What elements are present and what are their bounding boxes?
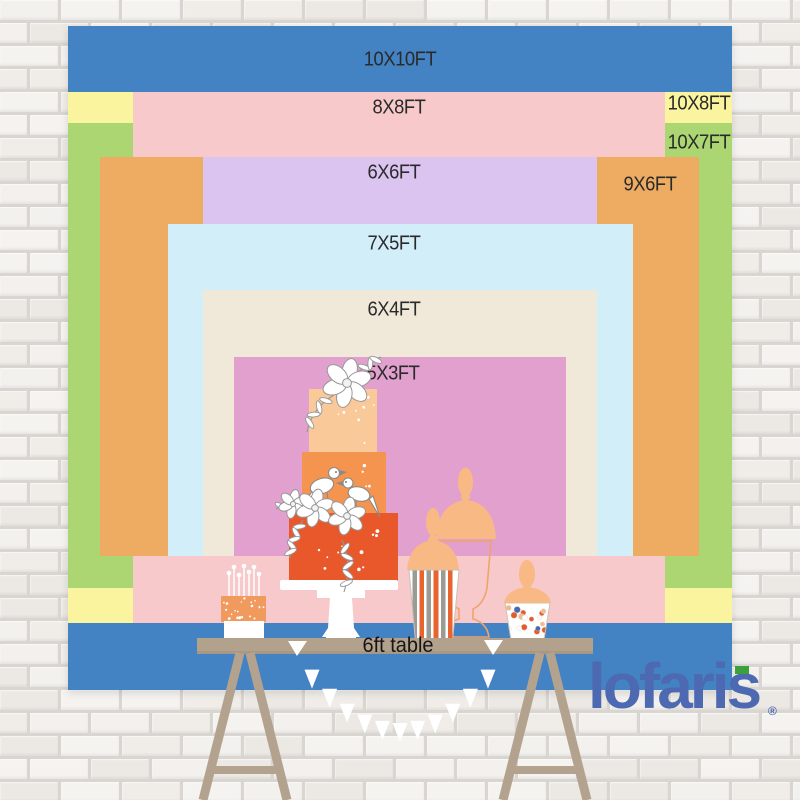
brick xyxy=(762,529,800,549)
brick xyxy=(457,713,515,733)
brick xyxy=(732,414,790,434)
brick xyxy=(122,690,180,710)
brick xyxy=(0,391,27,411)
brick-row xyxy=(0,736,800,756)
logo-green-flag-icon xyxy=(735,666,749,674)
brick xyxy=(427,782,485,800)
brick xyxy=(0,552,58,572)
brick-row xyxy=(0,759,800,779)
brick xyxy=(762,23,800,43)
size-label-5x3ft: 5X3FT xyxy=(367,363,420,386)
brick xyxy=(0,759,27,779)
brick xyxy=(762,115,800,135)
brick xyxy=(0,529,27,549)
brick xyxy=(457,759,515,779)
brick xyxy=(0,368,58,388)
brick xyxy=(549,736,607,756)
brick xyxy=(793,46,800,66)
brick xyxy=(213,759,271,779)
brick xyxy=(244,782,302,800)
brick xyxy=(762,345,800,365)
brick xyxy=(0,161,27,181)
brick xyxy=(793,0,800,20)
brick xyxy=(671,782,729,800)
brick xyxy=(0,598,58,618)
brick xyxy=(549,0,607,20)
brick xyxy=(0,92,58,112)
size-label-6x4ft: 6X4FT xyxy=(368,299,421,322)
brick xyxy=(122,782,180,800)
brick xyxy=(183,736,241,756)
brick xyxy=(762,161,800,181)
brick xyxy=(0,299,27,319)
size-label-10x7ft: 10X7FT xyxy=(668,132,731,155)
brick xyxy=(762,253,800,273)
backdrop-layer-5x3ft xyxy=(234,357,566,556)
brick xyxy=(793,782,800,800)
brick xyxy=(0,253,27,273)
brick xyxy=(488,736,546,756)
brick xyxy=(366,690,424,710)
brick xyxy=(305,736,363,756)
brick xyxy=(793,92,800,112)
size-label-9x6ft: 9X6FT xyxy=(624,174,677,197)
brick xyxy=(30,759,88,779)
brick xyxy=(762,207,800,227)
brick xyxy=(732,460,790,480)
brick xyxy=(305,690,363,710)
brick xyxy=(0,690,58,710)
brick xyxy=(793,368,800,388)
brick xyxy=(732,782,790,800)
brick xyxy=(0,437,27,457)
brick xyxy=(488,782,546,800)
brick xyxy=(732,552,790,572)
brick xyxy=(488,690,546,710)
brick xyxy=(732,138,790,158)
brick-row xyxy=(0,782,800,800)
brick xyxy=(793,690,800,710)
brick xyxy=(732,276,790,296)
brick xyxy=(0,184,58,204)
brick xyxy=(0,69,27,89)
size-label-10x8ft: 10X8FT xyxy=(668,93,731,116)
brick xyxy=(305,0,363,20)
brick xyxy=(762,299,800,319)
brick xyxy=(793,230,800,250)
brick xyxy=(335,759,393,779)
brick xyxy=(427,690,485,710)
brick xyxy=(0,207,27,227)
brick xyxy=(610,0,668,20)
brick xyxy=(762,621,800,641)
brick xyxy=(793,276,800,296)
brick xyxy=(0,644,58,664)
brick xyxy=(427,0,485,20)
brick xyxy=(579,759,637,779)
brick xyxy=(762,391,800,411)
brick xyxy=(0,483,27,503)
brick xyxy=(122,0,180,20)
size-label-10x10ft: 10X10FT xyxy=(364,49,436,72)
brick xyxy=(0,460,58,480)
brick xyxy=(0,621,27,641)
brick xyxy=(396,759,454,779)
brick xyxy=(793,552,800,572)
logo-text: lofaris xyxy=(588,650,759,722)
brick xyxy=(0,713,27,733)
brick xyxy=(366,736,424,756)
brick xyxy=(61,0,119,20)
backdrop-size-chart xyxy=(68,26,732,690)
table-size-label: 6ft table xyxy=(363,634,434,658)
brick xyxy=(793,460,800,480)
registered-trademark: ® xyxy=(768,704,777,718)
page: { "backdrop": { "sizes": [ {"label": "10… xyxy=(0,0,800,800)
brick xyxy=(244,690,302,710)
brick xyxy=(274,759,332,779)
brick xyxy=(91,759,149,779)
brick xyxy=(0,276,58,296)
brick xyxy=(0,414,58,434)
brick xyxy=(122,736,180,756)
brick xyxy=(427,736,485,756)
brick xyxy=(732,736,790,756)
brick xyxy=(793,414,800,434)
brick xyxy=(335,713,393,733)
brick xyxy=(244,736,302,756)
brick xyxy=(701,759,759,779)
brick xyxy=(91,713,149,733)
brick xyxy=(305,782,363,800)
brick xyxy=(732,506,790,526)
brick xyxy=(0,575,27,595)
brick xyxy=(274,713,332,733)
brick xyxy=(732,322,790,342)
brick xyxy=(671,0,729,20)
brick xyxy=(244,0,302,20)
brick xyxy=(183,0,241,20)
brick xyxy=(793,644,800,664)
brick xyxy=(549,782,607,800)
brick xyxy=(0,0,58,20)
size-label-8x8ft: 8X8FT xyxy=(373,97,426,120)
brick xyxy=(732,184,790,204)
brick xyxy=(610,782,668,800)
brick xyxy=(488,0,546,20)
brick xyxy=(0,23,27,43)
brick xyxy=(518,713,576,733)
brick xyxy=(30,713,88,733)
brick xyxy=(0,115,27,135)
brick xyxy=(762,437,800,457)
brick xyxy=(762,69,800,89)
brick xyxy=(183,690,241,710)
brick xyxy=(793,506,800,526)
brick xyxy=(793,598,800,618)
brick xyxy=(732,230,790,250)
lofaris-logo: lofaris ® xyxy=(588,656,759,716)
brick xyxy=(762,759,800,779)
brick xyxy=(610,736,668,756)
brick xyxy=(762,667,800,687)
brick xyxy=(732,46,790,66)
brick xyxy=(0,230,58,250)
brick xyxy=(0,345,27,365)
size-label-7x5ft: 7X5FT xyxy=(368,233,421,256)
brick xyxy=(762,483,800,503)
brick xyxy=(366,782,424,800)
brick xyxy=(518,759,576,779)
brick xyxy=(152,759,210,779)
brick xyxy=(0,138,58,158)
brick xyxy=(732,0,790,20)
brick xyxy=(366,0,424,20)
brick xyxy=(793,322,800,342)
brick xyxy=(0,736,58,756)
brick xyxy=(61,690,119,710)
brick-row xyxy=(0,0,800,20)
brick xyxy=(213,713,271,733)
brick xyxy=(183,782,241,800)
size-label-6x6ft: 6X6FT xyxy=(368,162,421,185)
brick xyxy=(396,713,454,733)
brick xyxy=(152,713,210,733)
brick xyxy=(61,782,119,800)
brick xyxy=(0,322,58,342)
brick xyxy=(671,736,729,756)
brick xyxy=(793,138,800,158)
brick xyxy=(732,92,790,112)
brick xyxy=(793,736,800,756)
brick xyxy=(0,506,58,526)
brick xyxy=(793,184,800,204)
brick xyxy=(0,667,27,687)
brick xyxy=(61,736,119,756)
brick xyxy=(732,368,790,388)
brick xyxy=(0,46,58,66)
brick xyxy=(732,598,790,618)
brick xyxy=(640,759,698,779)
brick xyxy=(0,782,58,800)
brick xyxy=(762,575,800,595)
